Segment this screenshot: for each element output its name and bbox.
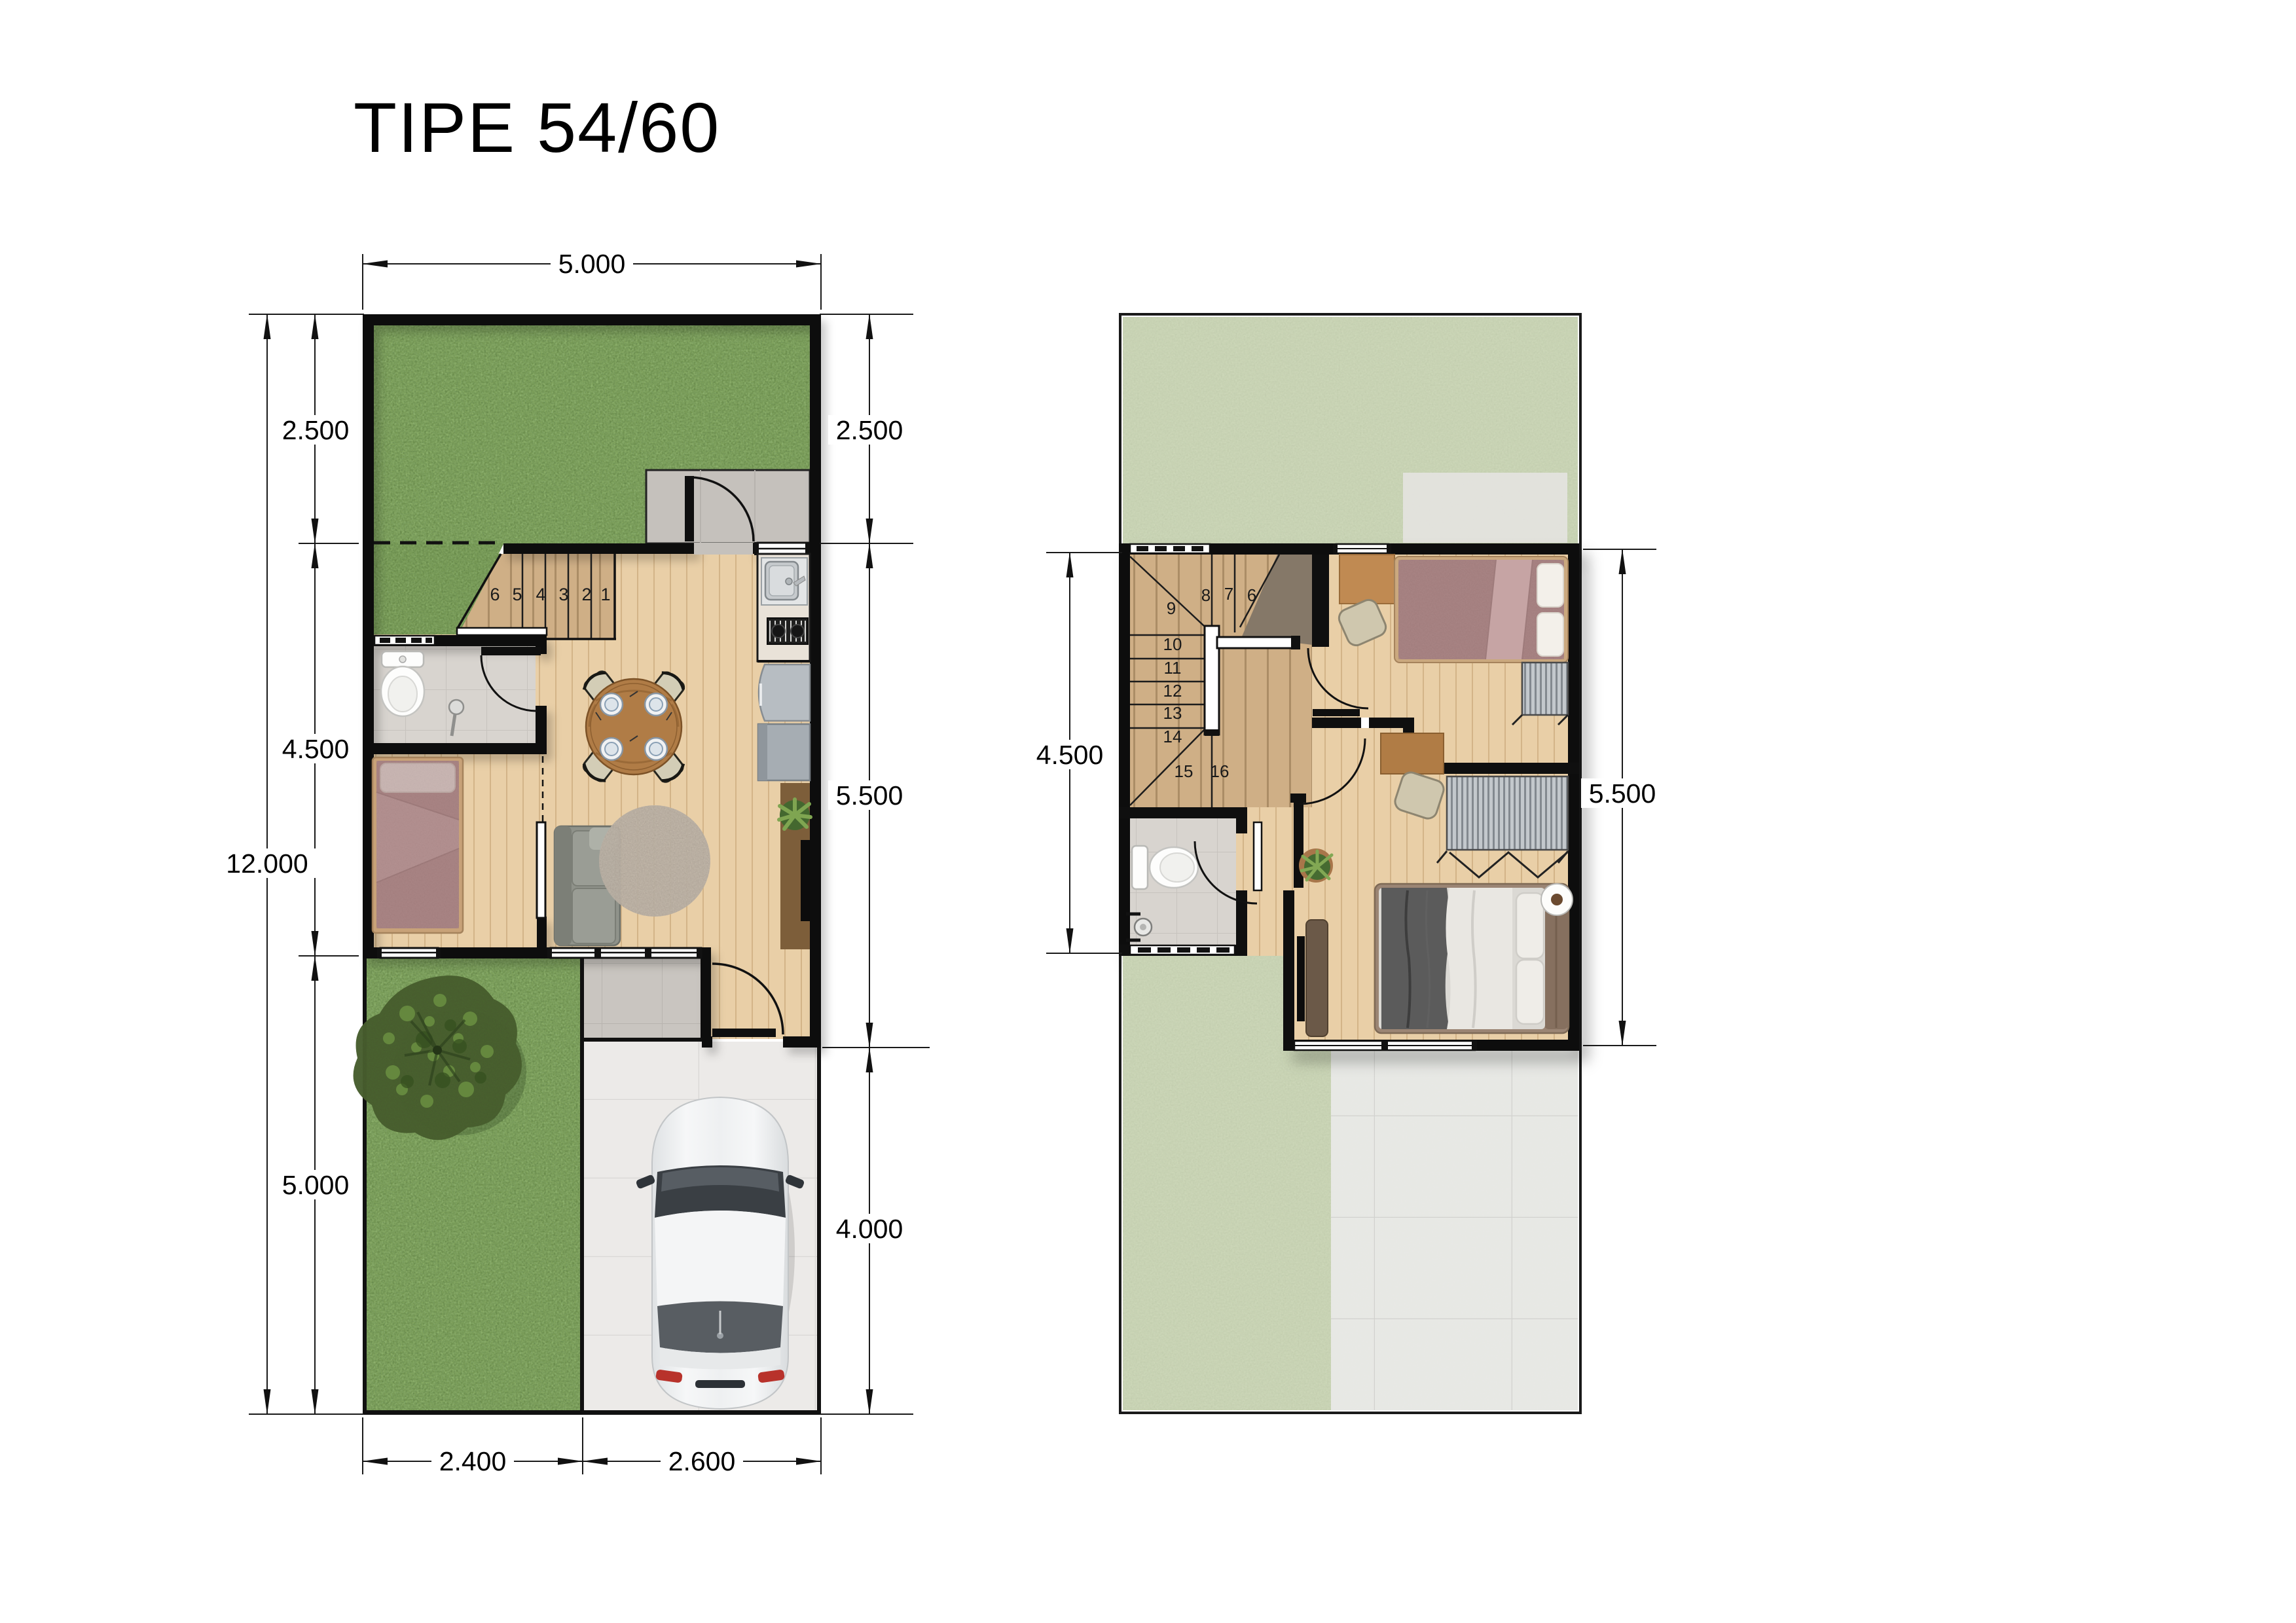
svg-text:16: 16 — [1211, 761, 1230, 781]
svg-text:2: 2 — [581, 585, 591, 604]
svg-text:6: 6 — [1247, 585, 1256, 605]
svg-text:5.500: 5.500 — [1589, 778, 1656, 809]
svg-text:4: 4 — [536, 585, 545, 604]
svg-text:9: 9 — [1167, 598, 1176, 618]
svg-text:7: 7 — [1224, 584, 1233, 604]
svg-text:12.000: 12.000 — [226, 848, 308, 879]
svg-text:6: 6 — [490, 585, 500, 604]
svg-text:3: 3 — [558, 585, 568, 604]
svg-text:2.600: 2.600 — [668, 1446, 736, 1476]
svg-text:TIPE 54/60: TIPE 54/60 — [354, 88, 720, 167]
svg-text:12: 12 — [1163, 681, 1182, 701]
svg-text:8: 8 — [1201, 585, 1211, 605]
svg-text:2.500: 2.500 — [282, 415, 350, 445]
svg-text:5.000: 5.000 — [282, 1170, 350, 1200]
svg-text:4.000: 4.000 — [836, 1214, 903, 1244]
svg-text:4.500: 4.500 — [1036, 740, 1104, 770]
svg-text:15: 15 — [1175, 761, 1194, 781]
svg-text:5.000: 5.000 — [558, 249, 626, 279]
svg-text:11: 11 — [1164, 658, 1182, 678]
svg-text:5.500: 5.500 — [836, 780, 903, 811]
svg-text:1: 1 — [600, 585, 610, 604]
svg-text:4.500: 4.500 — [282, 734, 350, 764]
svg-text:14: 14 — [1163, 727, 1182, 746]
svg-text:2.500: 2.500 — [836, 415, 903, 445]
svg-text:10: 10 — [1163, 634, 1182, 654]
svg-text:5: 5 — [512, 585, 522, 604]
svg-text:2.400: 2.400 — [439, 1446, 507, 1476]
svg-text:13: 13 — [1163, 703, 1182, 723]
